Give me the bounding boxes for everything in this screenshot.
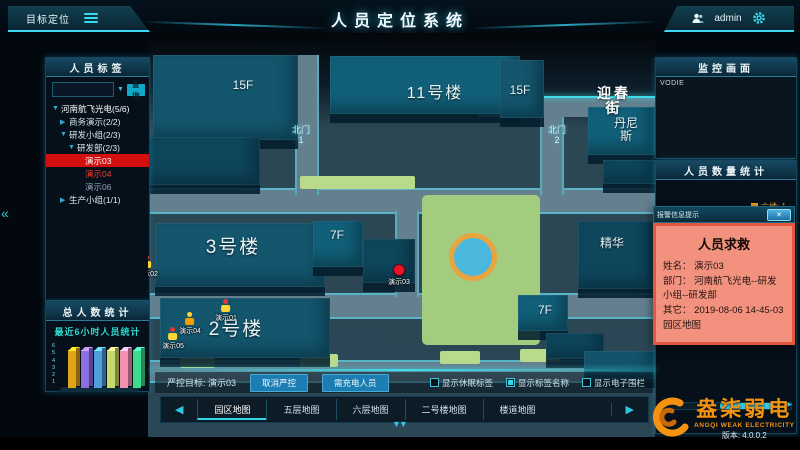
search-row: ▼ 查询	[46, 77, 149, 100]
tree-item[interactable]: ▼ 研发部(2/3)	[46, 141, 149, 154]
marker-label: 演示01	[215, 313, 237, 323]
tree-caret-icon[interactable]: ▼	[68, 144, 75, 151]
checkbox-label: 显示电子围栏	[594, 377, 645, 389]
popup-body: 人员求救 姓名： 演示03 部门： 河南航飞光电--研发小组--研发部 其它： …	[653, 223, 795, 345]
control-button[interactable]: 需充电人员	[322, 374, 389, 392]
person-tree: ▼ 河南航飞光电(5/6) ▶ 商务演示(2/2) ▼ 研发小组(2/3) ▼ …	[46, 102, 149, 206]
person-icon	[393, 264, 405, 276]
dropdown-caret-icon[interactable]: ▼	[117, 86, 124, 93]
tree-item-label: 商务演示(2/2)	[69, 116, 120, 128]
building-small	[603, 160, 655, 184]
sos-row-key: 部门：	[663, 276, 692, 287]
checkbox-icon[interactable]	[582, 378, 591, 387]
user-icon	[692, 13, 704, 24]
sos-title: 人员求救	[663, 234, 785, 253]
monitor-title: 监控画面	[656, 58, 796, 77]
person-marker[interactable]: 演示03	[388, 264, 410, 287]
bar	[107, 350, 115, 388]
sos-row: 其它： 2019-08-06 14-45-03 园区地图	[663, 304, 785, 333]
gear-icon[interactable]	[752, 11, 766, 25]
y-tick: 3	[52, 366, 55, 372]
query-button[interactable]: 查询	[127, 84, 145, 96]
building-jinghua	[578, 221, 655, 289]
tree-caret-icon[interactable]: ▼	[52, 105, 59, 112]
map-label: 北门 2	[548, 126, 566, 146]
strict-target-label: 严控目标: 演示03	[167, 376, 236, 389]
alarm-popup: 报警信息提示 ✕ 人员求救 姓名： 演示03 部门： 河南航飞光电--研发小组-…	[653, 206, 795, 345]
map-label: 7F	[538, 304, 552, 317]
close-icon[interactable]: ✕	[767, 209, 791, 221]
tree-item-label: 研发小组(2/3)	[69, 129, 120, 141]
bar-chart-bars	[65, 342, 141, 388]
sidebar-collapse-icon[interactable]: «	[1, 205, 9, 221]
tree-item[interactable]: 演示04	[46, 167, 149, 180]
y-tick: 4	[52, 359, 55, 365]
display-option-checkbox[interactable]: 显示标签名称	[506, 377, 569, 389]
person-icon	[168, 327, 177, 340]
floor-tab[interactable]: 园区地图	[197, 399, 266, 420]
floor-tab[interactable]: 六层地图	[336, 399, 405, 420]
monitor-panel: 监控画面 VODIE	[655, 57, 797, 159]
lawn-strip	[440, 351, 480, 364]
tree-caret-icon[interactable]: ▼	[60, 131, 67, 138]
tree-item-label: 演示06	[85, 181, 111, 193]
floor-tabs: 园区地图五层地图六层地图二号楼地图楼道地图	[197, 399, 551, 420]
tree-item-label: 生产小组(1/1)	[69, 194, 120, 206]
tree-item[interactable]: 演示06	[46, 180, 149, 193]
floor-tab[interactable]: 五层地图	[266, 399, 335, 420]
header: 目标定位 人员定位系统 admin	[0, 0, 800, 34]
floor-tab[interactable]: 楼道地图	[483, 399, 552, 420]
popup-titlebar[interactable]: 报警信息提示 ✕	[653, 206, 795, 223]
bar-chart-title: 最近6小时人员统计	[46, 325, 149, 338]
y-tick: 2	[52, 373, 55, 379]
total-stats-title: 总人数统计	[46, 302, 149, 321]
tree-item[interactable]: ▼ 河南航飞光电(5/6)	[46, 102, 149, 115]
brand-logo: 盎柒弱电 ANGQI WEAK ELECTRICITY 版本: 4.0.0.2	[642, 391, 798, 447]
person-icon	[221, 299, 230, 312]
sos-row-key: 其它：	[663, 305, 692, 316]
sos-row: 部门： 河南航飞光电--研发小组--研发部	[663, 275, 785, 304]
checkbox-label: 显示休眠标签	[442, 377, 493, 389]
bar	[94, 350, 102, 388]
marker-label: 演示03	[388, 277, 410, 287]
popup-titlebar-label: 报警信息提示	[657, 210, 699, 220]
marker-label: 演示05	[162, 341, 184, 351]
person-tags-title: 人员标签	[46, 58, 149, 77]
y-axis-ticks: 654321	[52, 344, 55, 386]
sos-row-value: 演示03	[694, 261, 724, 272]
swirl-logo-icon	[642, 391, 692, 443]
person-tags-panel: 人员标签 ▼ 查询 ▼ 河南航飞光电(5/6) ▶ 商务演示(2/2) ▼ 研发…	[45, 57, 150, 301]
pond	[449, 233, 497, 281]
username[interactable]: admin	[714, 13, 741, 24]
tree-caret-icon[interactable]: ▶	[60, 118, 67, 126]
person-marker[interactable]: 演示01	[215, 299, 237, 323]
person-marker[interactable]: 演示02	[148, 255, 158, 279]
bar	[68, 350, 76, 388]
app: 目标定位 人员定位系统 admin	[0, 0, 800, 450]
y-tick: 1	[52, 380, 55, 386]
tree-item-label: 研发部(2/3)	[77, 142, 120, 154]
tree-item[interactable]: ▼ 研发小组(2/3)	[46, 128, 149, 141]
map-label: 15F	[233, 79, 254, 92]
control-button[interactable]: 取消严控	[250, 374, 308, 392]
control-buttons: 取消严控需充电人员	[236, 374, 389, 392]
version-label: 版本: 4.0.0.2	[722, 430, 767, 441]
checkbox-icon[interactable]	[430, 378, 439, 387]
tree-item[interactable]: 演示03	[46, 154, 149, 167]
person-marker[interactable]: 演示05	[162, 327, 184, 351]
building-15f-left	[153, 55, 298, 140]
brand-name: 盎柒弱电	[696, 399, 792, 420]
bar-chart: 654321	[52, 342, 143, 394]
map-label: 迎春街	[594, 86, 635, 117]
search-input[interactable]	[52, 82, 114, 97]
tree-item-label: 演示03	[85, 155, 111, 167]
lawn-strip	[300, 176, 415, 189]
map-label: 2号楼	[209, 320, 264, 341]
video-label: VODIE	[660, 80, 684, 87]
map-label: 北门 1	[292, 126, 310, 146]
tree-item[interactable]: ▶ 商务演示(2/2)	[46, 115, 149, 128]
person-icon	[185, 312, 194, 325]
collapse-handle-icon[interactable]: ▼▼	[392, 419, 406, 429]
map-label: 3号楼	[206, 238, 261, 259]
tree-item[interactable]: ▶ 生产小组(1/1)	[46, 193, 149, 206]
map-control-bar: 严控目标: 演示03 取消严控需充电人员 显示休眠标签 显示标签名称 显示电子围…	[155, 372, 653, 393]
tree-item-label: 河南航飞光电(5/6)	[61, 103, 129, 115]
checkbox-icon[interactable]	[506, 378, 515, 387]
video-feed[interactable]: VODIE	[656, 77, 796, 158]
person-count-title: 人员数量统计	[656, 161, 796, 180]
header-right-box: admin	[664, 6, 794, 32]
sos-rows: 姓名： 演示03 部门： 河南航飞光电--研发小组--研发部 其它： 2019-…	[663, 260, 785, 334]
sos-row-key: 姓名：	[663, 261, 692, 272]
map-label: 11号楼	[407, 85, 464, 103]
person-icon	[148, 255, 151, 268]
map-label: 7F	[330, 229, 344, 242]
y-tick: 5	[52, 351, 55, 357]
divider-glow	[150, 369, 655, 371]
building-annex	[148, 137, 260, 185]
display-option-checkbox[interactable]: 显示休眠标签	[430, 377, 493, 389]
floor-tab[interactable]: 二号楼地图	[405, 399, 483, 420]
y-tick: 6	[52, 344, 55, 350]
tree-caret-icon[interactable]: ▶	[60, 196, 67, 204]
tree-item-label: 演示04	[85, 168, 111, 180]
map-label: 丹尼斯	[612, 117, 641, 143]
map-label: 15F	[510, 84, 531, 97]
sos-row: 姓名： 演示03	[663, 260, 785, 275]
nav-prev-icon[interactable]: ◀	[161, 403, 197, 416]
marker-label: 演示02	[148, 269, 158, 279]
bar	[120, 350, 128, 388]
checkbox-group: 显示休眠标签 显示标签名称 显示电子围栏	[430, 377, 645, 389]
bar	[133, 350, 141, 388]
bar	[81, 350, 89, 388]
display-option-checkbox[interactable]: 显示电子围栏	[582, 377, 645, 389]
total-stats-panel: 总人数统计 最近6小时人员统计 654321	[45, 301, 150, 392]
map-label: 精华	[600, 237, 624, 250]
brand-name-en: ANGQI WEAK ELECTRICITY	[694, 422, 795, 429]
checkbox-label: 显示标签名称	[518, 377, 569, 389]
